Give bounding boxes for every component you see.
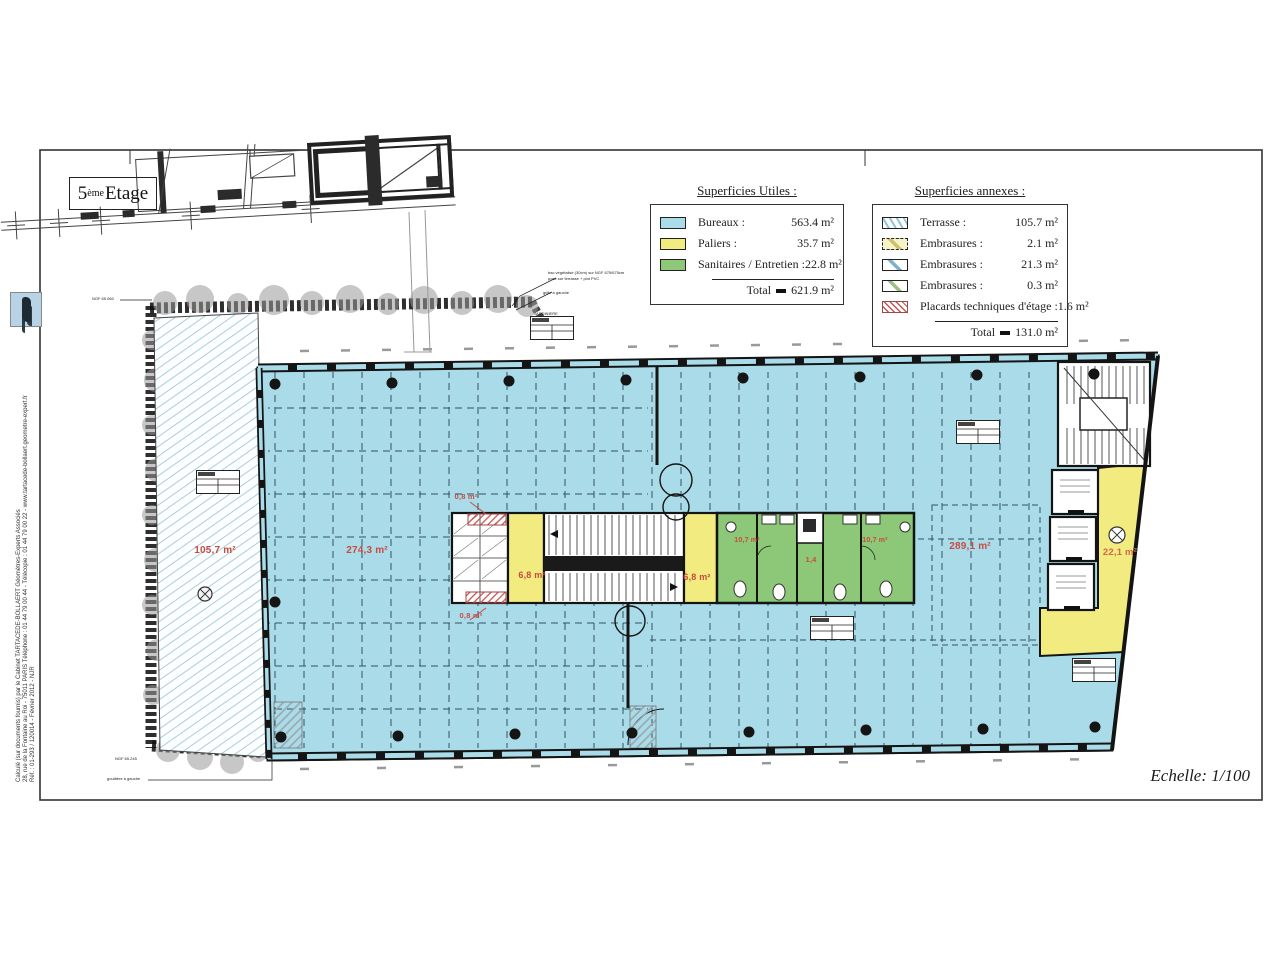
palier-centre [684,513,717,603]
embrasure-patch-center [630,706,656,748]
annotation-bac-2: posé sur terrasse + plot PVC [548,276,599,281]
legend-superficies-annexes: Superficies annexes : Terrasse : 105.7 m… [872,183,1068,347]
area-label-palier-est: 22,1 m² [1088,547,1152,558]
embrasures-2-swatch [882,259,908,271]
legend-row-sanitaires: Sanitaires / Entretien : 22.8 m² [660,254,834,275]
legend-row-embrasures-3: Embrasures : 0.3 m² [882,275,1058,296]
floor-plan-drawing [0,0,1280,960]
area-label-palier-ouest: 6,8 m² [500,570,564,580]
floor-title-number: 5 [78,183,88,205]
elevator-cabins [1048,470,1098,610]
drawing-sheet: 5ème Etage Superficies Utiles : Bureaux … [0,0,1280,960]
terrace-hatched-area [154,313,266,757]
area-label-bureaux-est: 289,1 m² [935,541,1005,552]
surveyor-credits: Calculé (sur documents fournis) par le C… [16,326,37,782]
area-label-sanitaires-est: 10,7 m² [843,537,907,544]
legend-row-terrasse: Terrasse : 105.7 m² [882,212,1058,233]
upper-floor-connection-lines [404,210,432,352]
total-dash [776,289,786,293]
legend-row-embrasures-2: Embrasures : 21.3 m² [882,254,1058,275]
legend-utiles-total: Total 621.9 m² [712,279,834,298]
area-label-entretien: 1,4 [781,555,841,564]
area-label-bureaux-ouest: 274,3 m² [332,545,402,556]
total-dash [1000,331,1010,335]
area-label-palier-centre: 6,8 m² [665,572,729,582]
legend-utiles-title: Superficies Utiles : [650,183,844,199]
surveyor-logo [10,292,42,327]
annotation-bac-1: bac végétalisé (30cm) sur NGF 675/675cm [548,270,624,275]
annotation-ngf-haut: NGF 65.060 [92,296,114,301]
palier-ouest [508,513,544,603]
embrasures-1-swatch [882,238,908,250]
legend-annexes-box: Terrasse : 105.7 m² Embrasures : 2.1 m² … [872,204,1068,347]
annotation-grille: grille à gauche [543,290,569,295]
legend-annexes-total: Total 131.0 m² [935,321,1058,340]
area-label-sanitaires-ouest: 10,7 m² [715,537,779,544]
bureaux-swatch [660,217,686,229]
scale-label: Echelle: 1/100 [1040,766,1250,786]
legend-row-paliers: Paliers : 35.7 m² [660,233,834,254]
placard-technique-haut [468,514,506,525]
annotation-gouttiere: gouttière à gauche [107,776,140,781]
terrace-drain-icon [198,587,212,601]
annotation-jardiniere: JARDINIERE [534,311,558,316]
legend-row-bureaux: Bureaux : 563.4 m² [660,212,834,233]
annotation-ngf-bas: NGF 65.245 [115,756,137,761]
legend-superficies-utiles: Superficies Utiles : Bureaux : 563.4 m² … [650,183,844,305]
legend-utiles-box: Bureaux : 563.4 m² Paliers : 35.7 m² San… [650,204,844,305]
floor-title: 5ème Etage [69,177,157,210]
paliers-swatch [660,238,686,250]
legend-row-embrasures-1: Embrasures : 2.1 m² [882,233,1058,254]
legend-annexes-title: Superficies annexes : [872,183,1068,199]
area-label-terrasse: 105,7 m² [180,545,250,556]
embrasures-3-swatch [882,280,908,292]
credits-line-2: 28, rue de la Fontaine au Roi - 75011 PA… [23,326,30,782]
logo-mark-icon [22,297,31,322]
placard-technique-bas [466,592,506,603]
floor-title-ordinal: ème [87,188,104,199]
legend-row-placards: Placards techniques d'étage : 1.6 m² [882,296,1058,317]
credits-line-1: Calculé (sur documents fournis) par le C… [16,326,23,782]
area-label-placard-bas: 0,8 m² [439,611,503,620]
palier-est-drain-icon [1109,527,1125,543]
area-label-placard-haut: 0,8 m² [434,492,498,501]
main-building [120,278,1158,780]
central-core [452,513,914,603]
terrasse-swatch [882,217,908,229]
floor-title-text: Etage [105,183,148,205]
credits-line-3: Réf. : 01-293 / 120014 - Février 2012 - … [30,326,37,782]
placards-swatch [882,301,908,313]
sanitaires-swatch [660,259,686,271]
